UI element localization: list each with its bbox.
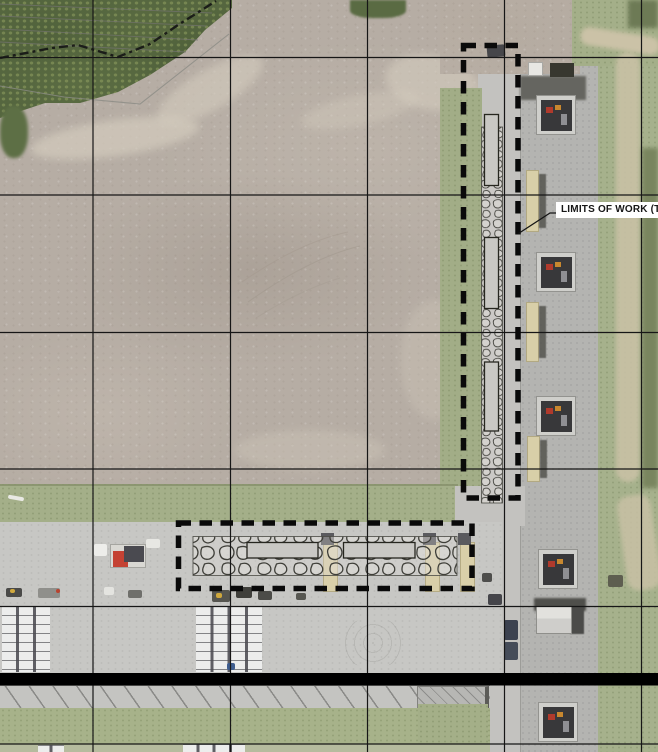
tan-post-body [425,542,440,592]
transformer-station [536,252,576,292]
map-features-layer [0,0,658,752]
limits-of-work-label: LIMITS OF WORK (TYP [556,202,658,218]
vehicle [488,594,502,605]
transformer-orange-unit [555,262,561,267]
transformer-slot [563,568,569,579]
service-building-roof [526,170,539,232]
tan-post-body [460,542,475,592]
transformer-slot [561,271,567,282]
transformer-slot [561,114,567,125]
tan-post-cap [423,533,436,545]
trailer-row [2,606,50,672]
transformer-red-unit [546,107,553,113]
tan-post-cap [458,533,471,545]
vehicle [146,539,160,548]
service-building [527,436,547,482]
vehicle [8,495,24,502]
red-truck-shadow-box [124,546,144,562]
vehicle [504,642,518,660]
transformer-orange-unit [557,712,563,717]
vehicle [10,589,15,593]
service-building [526,170,546,232]
tan-post-cap [321,533,334,545]
vehicle [227,663,235,670]
vehicle [216,593,222,598]
vehicle [608,575,623,587]
red-truck [110,544,146,568]
tan-post [425,533,440,593]
vehicle [56,589,60,593]
vehicle [94,544,107,556]
vehicle [482,573,492,582]
transformer-red-unit [548,714,555,720]
site-plan-aerial-view: LIMITS OF WORK (TYP [0,0,658,752]
trailer-row [38,745,64,752]
transformer-red-unit [546,264,553,270]
vehicle [128,590,142,598]
transformer-station [538,702,578,742]
transformer-orange-unit [555,105,561,110]
transformer-orange-unit [557,559,563,564]
vehicle [504,620,518,640]
service-building-shadow [539,174,546,228]
transformer-station [536,396,576,436]
vehicle [258,591,272,600]
vehicle [236,587,252,598]
vehicle [296,593,306,600]
transformer-station [536,95,576,135]
transformer-station [538,549,578,589]
tan-post [460,533,475,593]
transformer-slot [561,415,567,426]
bushes [350,0,406,18]
tree-canopy-edge [0,106,28,158]
service-building-roof [526,302,539,362]
service-building-shadow [540,440,547,478]
service-building-roof [527,436,540,482]
trailer-row [183,744,245,752]
vehicle [487,44,506,58]
vehicle [104,587,114,595]
transformer-orange-unit [555,406,561,411]
service-building-shadow [539,306,546,358]
service-building [526,302,546,362]
transformer-red-unit [548,561,555,567]
transformer-red-unit [546,408,553,414]
tan-post-body [323,542,338,592]
tan-post [323,533,338,593]
limits-of-work-label-text: LIMITS OF WORK (TYP [561,204,658,215]
transformer-slot [563,721,569,732]
